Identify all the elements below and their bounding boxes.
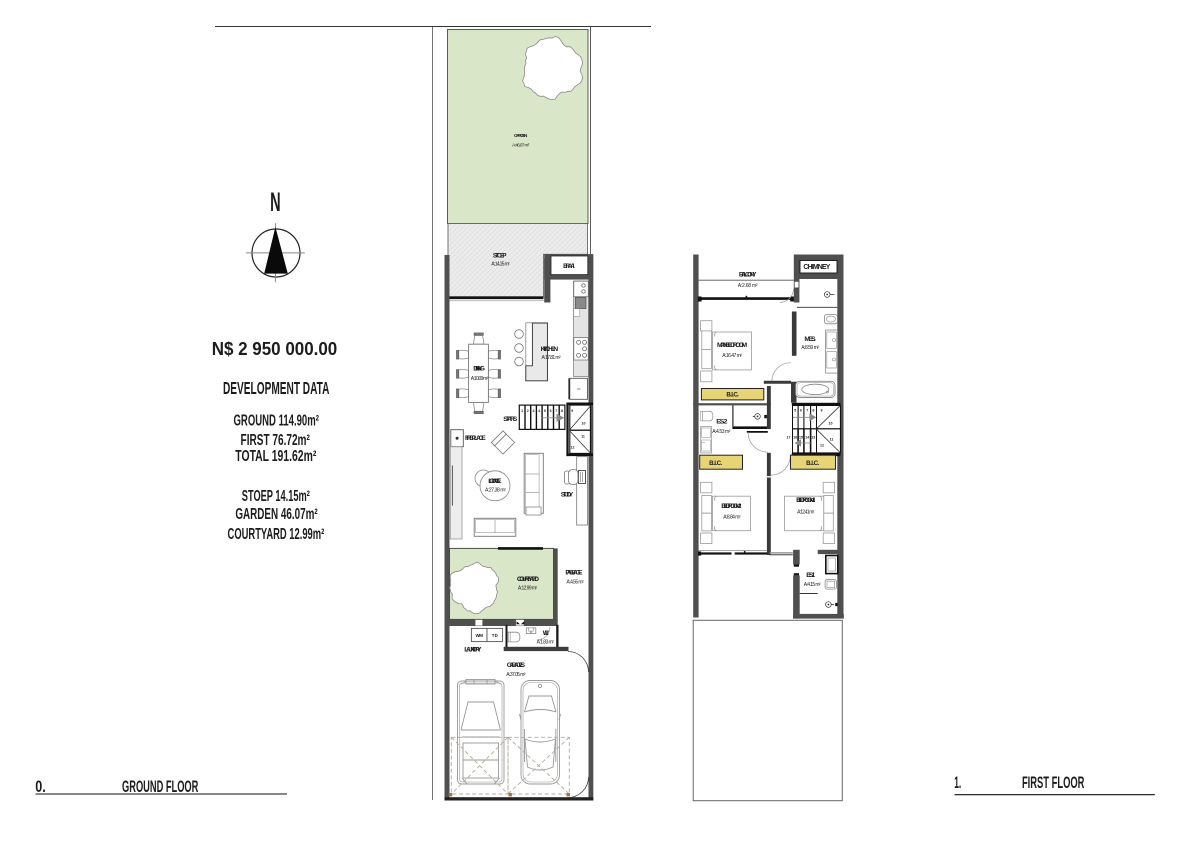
svg-text:A:12.99 m²: A:12.99 m² [518, 586, 538, 592]
svg-text:GARDEN: GARDEN [514, 133, 528, 139]
svg-text:WC: WC [543, 630, 550, 637]
svg-text:BEDROOM 1: BEDROOM 1 [796, 497, 815, 504]
svg-text:DINING: DINING [473, 366, 485, 373]
svg-text:LAUNDRY: LAUNDRY [464, 647, 482, 654]
svg-text:A:8.59 m²: A:8.59 m² [801, 345, 819, 351]
svg-text:16: 16 [793, 436, 797, 440]
svg-text:STUDY: STUDY [561, 492, 574, 499]
svg-text:A:14.15 m²: A:14.15 m² [491, 262, 510, 268]
svg-text:5: 5 [794, 409, 796, 413]
svg-text:1.: 1. [954, 774, 961, 792]
svg-text:A:37.05 m²: A:37.05 m² [506, 672, 526, 678]
svg-text:5: 5 [544, 409, 546, 413]
svg-text:BRAAI: BRAAI [563, 263, 575, 270]
svg-text:FIREPLACE: FIREPLACE [465, 435, 486, 442]
svg-text:7: 7 [555, 409, 557, 413]
svg-text:A:1.83 m²: A:1.83 m² [537, 640, 555, 646]
svg-text:GARDEN 46.07m²: GARDEN 46.07m² [235, 506, 317, 523]
svg-text:9: 9 [571, 409, 573, 413]
svg-text:1: 1 [521, 409, 523, 413]
svg-text:12: 12 [571, 446, 575, 450]
svg-text:WM: WM [475, 633, 483, 638]
svg-text:N: N [270, 187, 281, 217]
svg-text:9: 9 [821, 409, 823, 413]
svg-text:B.I.C.: B.I.C. [726, 392, 739, 399]
svg-text:FIRST FLOOR: FIRST FLOOR [1022, 774, 1085, 792]
svg-text:7: 7 [806, 409, 808, 413]
svg-text:M.E.S.: M.E.S. [804, 336, 816, 343]
svg-text:LOUNGE: LOUNGE [488, 478, 502, 485]
svg-text:A:8.84 m²: A:8.84 m² [723, 514, 741, 520]
svg-text:KITCHEN: KITCHEN [541, 346, 559, 353]
svg-text:GROUND 114.90m²: GROUND 114.90m² [234, 412, 319, 429]
svg-text:MAIN BEDROOM: MAIN BEDROOM [717, 342, 748, 349]
svg-text:CHIMNEY: CHIMNEY [803, 264, 830, 271]
svg-text:B.I.C.: B.I.C. [709, 460, 722, 467]
svg-text:BALCONY: BALCONY [739, 272, 757, 279]
svg-text:A:16.47 m²: A:16.47 m² [722, 353, 742, 359]
svg-text:GARAGES: GARAGES [507, 662, 526, 669]
svg-text:10: 10 [582, 422, 586, 426]
svg-text:A:4.15 m²: A:4.15 m² [804, 582, 821, 588]
svg-text:4: 4 [538, 409, 540, 413]
svg-text:COURTYARD 12.99m²: COURTYARD 12.99m² [228, 526, 325, 543]
svg-text:12: 12 [820, 444, 824, 448]
svg-text:STAIRS: STAIRS [503, 416, 518, 423]
svg-text:BEDROOM 2: BEDROOM 2 [721, 503, 741, 510]
svg-text:6: 6 [800, 409, 802, 413]
svg-text:A:12.41 m²: A:12.41 m² [797, 509, 815, 515]
svg-text:A:2.68 m²: A:2.68 m² [738, 283, 758, 289]
svg-text:PASSAGE: PASSAGE [565, 569, 583, 576]
svg-text:13: 13 [811, 436, 815, 440]
svg-text:E.S. 1: E.S. 1 [806, 572, 815, 579]
svg-text:14: 14 [805, 436, 809, 440]
svg-text:N$ 2 950 000.00: N$ 2 950 000.00 [212, 339, 338, 359]
svg-text:GROUND FLOOR: GROUND FLOOR [122, 778, 198, 796]
svg-text:TD: TD [492, 633, 498, 638]
svg-text:TOTAL 191.62m²: TOTAL 191.62m² [235, 448, 316, 465]
svg-text:STOEP 14.15m²: STOEP 14.15m² [242, 488, 310, 505]
svg-text:11: 11 [830, 438, 834, 442]
svg-text:DEVELOPMENT DATA: DEVELOPMENT DATA [223, 378, 329, 398]
svg-text:2: 2 [527, 409, 529, 413]
svg-text:A:46.07 m²: A:46.07 m² [512, 142, 530, 147]
svg-text:17: 17 [787, 436, 791, 440]
svg-text:FIRST 76.72m²: FIRST 76.72m² [241, 432, 310, 449]
svg-text:8: 8 [812, 409, 814, 413]
svg-text:8: 8 [561, 409, 563, 413]
svg-text:E.S. 2: E.S. 2 [716, 418, 727, 425]
svg-text:6: 6 [550, 409, 552, 413]
svg-text:A:10.09 m²: A:10.09 m² [471, 376, 489, 382]
svg-text:COURTYARD: COURTYARD [517, 576, 539, 583]
svg-text:11: 11 [581, 435, 585, 439]
svg-text:B.I.C.: B.I.C. [806, 460, 819, 467]
svg-text:10: 10 [829, 422, 833, 426]
svg-text:A:17.81 m²: A:17.81 m² [542, 355, 561, 361]
svg-text:A:4.55 m²: A:4.55 m² [567, 579, 585, 585]
svg-text:A:4.53 m²: A:4.53 m² [712, 429, 731, 435]
svg-text:STOEP: STOEP [493, 252, 507, 259]
svg-text:3: 3 [533, 409, 535, 413]
svg-text:A:27.38 m²: A:27.38 m² [485, 488, 506, 494]
svg-text:0.: 0. [35, 778, 46, 796]
svg-text:15: 15 [799, 436, 803, 440]
